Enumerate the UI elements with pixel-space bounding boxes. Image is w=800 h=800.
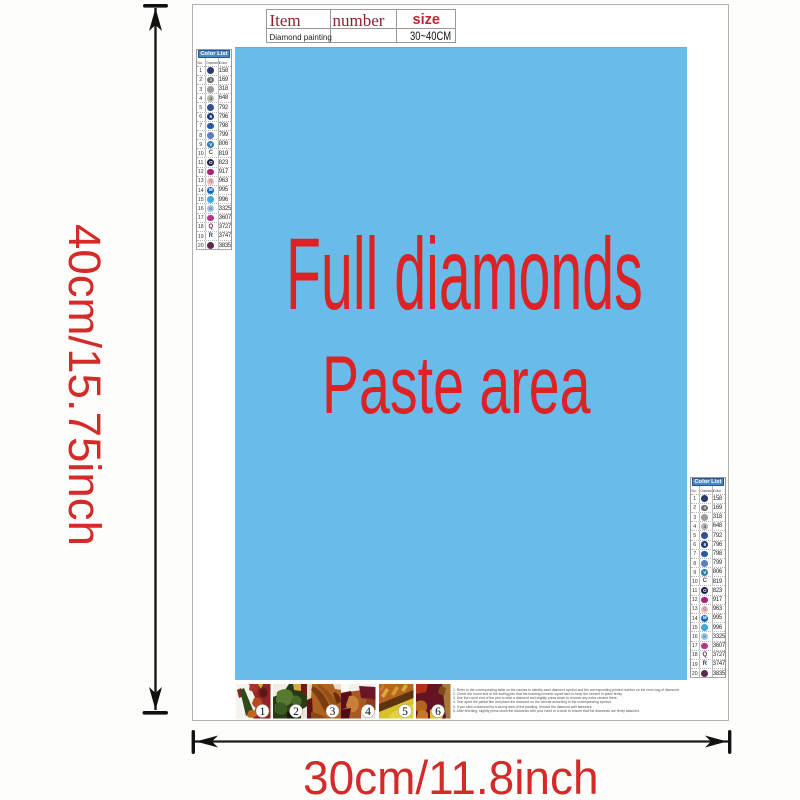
svg-text:2: 2 (293, 706, 299, 718)
svg-text:1: 1 (260, 706, 266, 718)
svg-text:5: 5 (402, 706, 408, 718)
svg-text:4: 4 (366, 706, 372, 718)
svg-text:6: 6 (435, 706, 441, 718)
svg-text:3: 3 (330, 706, 336, 718)
